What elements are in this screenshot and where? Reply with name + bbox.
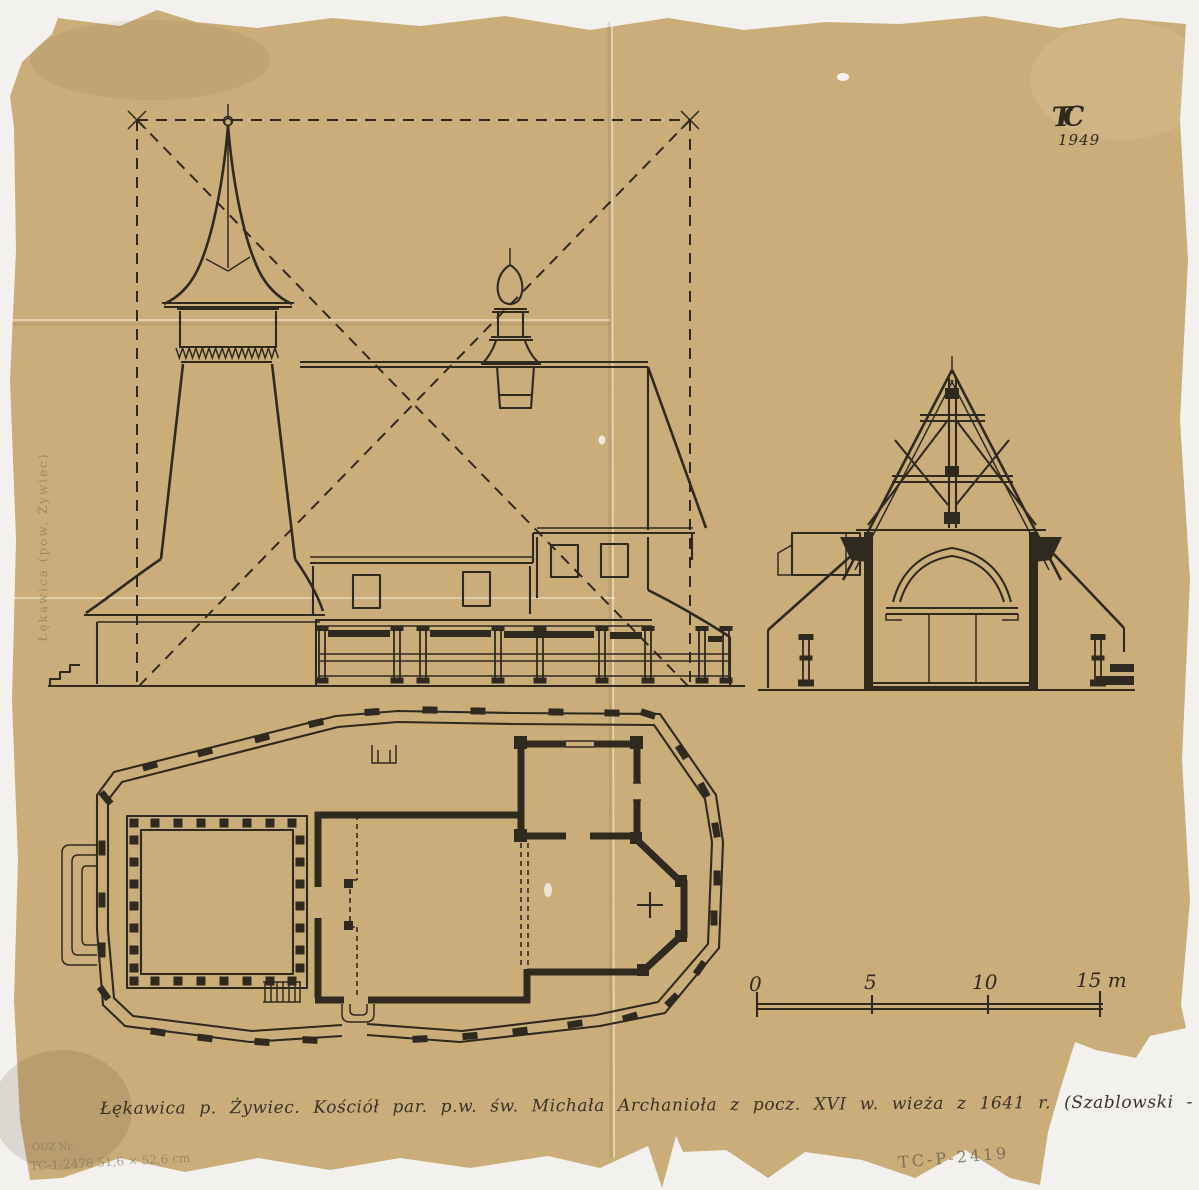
pencil-note-bottom-left-1: OUZ Nr	[32, 1142, 72, 1154]
fold-shadow-vertical	[609, 22, 611, 1158]
post-block	[130, 836, 139, 845]
post-block	[266, 819, 275, 828]
post-block	[220, 977, 229, 986]
post-block	[714, 871, 721, 886]
loft-post-1	[344, 879, 353, 888]
scale-label-0: 0	[749, 972, 762, 996]
post-block	[711, 911, 718, 926]
sacristy-corner-2	[630, 736, 643, 749]
post-block	[696, 678, 709, 684]
post-block	[534, 678, 547, 684]
paper-outline	[10, 10, 1190, 1188]
monogram-year: 1949	[1058, 131, 1100, 149]
post-block	[798, 680, 814, 687]
post-block	[151, 977, 160, 986]
post-block	[1091, 634, 1106, 640]
post-block	[642, 626, 655, 631]
scale-label-10: 10	[972, 970, 997, 994]
sacristy-corner-3	[514, 829, 527, 842]
post-block	[243, 819, 252, 828]
post-block	[492, 626, 505, 631]
chancel-corner-block-2	[675, 875, 687, 887]
post-block	[412, 1035, 427, 1043]
post-block	[99, 841, 106, 856]
paper-sheet	[0, 10, 1199, 1188]
chancel-corner-block-4	[637, 964, 649, 976]
post-block	[316, 678, 329, 684]
post-block	[417, 678, 430, 684]
post-block	[296, 858, 305, 867]
drawing-canvas	[0, 0, 1199, 1190]
post-block	[288, 819, 297, 828]
scale-label-5: 5	[864, 970, 877, 994]
post-block	[197, 819, 206, 828]
post-block	[99, 893, 106, 908]
post-block	[799, 634, 814, 640]
post-block	[534, 626, 547, 631]
post-block	[197, 977, 206, 986]
king-post-joint-3	[944, 512, 960, 524]
chancel-corner-block-3	[675, 930, 687, 942]
scanned-architectural-drawing-sheet: TC 1949 Łękawica p. Żywiec. Kościół par.…	[0, 0, 1199, 1190]
post-block	[130, 819, 139, 828]
sacristy-corner-1	[514, 736, 527, 749]
post-block	[296, 902, 305, 911]
scale-label-15m: 15 m	[1076, 968, 1127, 992]
post-block	[220, 819, 229, 828]
post-block	[243, 977, 252, 986]
post-block	[800, 656, 813, 661]
post-block	[130, 946, 139, 955]
margin-note-vertical: Łękawica (pow. Żywiec)	[36, 452, 50, 642]
post-block	[316, 626, 329, 631]
post-block	[174, 977, 183, 986]
post-block	[99, 943, 106, 958]
paper-fleck-2	[544, 883, 552, 897]
post-block	[596, 678, 609, 684]
post-block	[642, 678, 655, 684]
post-block	[696, 626, 709, 631]
post-block	[596, 626, 609, 631]
paper-shade-top	[30, 20, 270, 100]
post-block	[422, 706, 437, 713]
post-block	[1090, 680, 1106, 687]
post-block	[1092, 656, 1105, 661]
post-block	[548, 708, 563, 715]
section-floor-bar	[873, 686, 1029, 690]
post-block	[130, 977, 139, 986]
post-block	[130, 924, 139, 933]
post-block	[296, 836, 305, 845]
post-block	[266, 977, 275, 986]
post-block	[296, 964, 305, 973]
post-block	[391, 678, 404, 684]
paper-fleck-1	[599, 436, 606, 445]
king-post-joint-1	[945, 388, 959, 399]
post-block	[130, 880, 139, 889]
post-block	[470, 707, 485, 714]
paper-hole	[837, 73, 849, 81]
post-block	[302, 1036, 317, 1044]
post-block	[130, 858, 139, 867]
post-block	[130, 902, 139, 911]
post-block	[720, 678, 733, 684]
post-block	[417, 626, 430, 631]
right-step-2	[1110, 664, 1134, 672]
loft-post-2	[344, 921, 353, 930]
post-block	[720, 626, 733, 631]
author-monogram: TC	[1051, 102, 1076, 134]
post-block	[492, 678, 505, 684]
post-block	[296, 924, 305, 933]
post-block	[604, 709, 619, 716]
post-block	[254, 1038, 269, 1046]
post-block	[151, 819, 160, 828]
post-block	[364, 708, 379, 716]
post-block	[130, 964, 139, 973]
post-block	[296, 946, 305, 955]
post-block	[174, 819, 183, 828]
post-block	[296, 880, 305, 889]
post-block	[462, 1032, 478, 1040]
post-block	[391, 626, 404, 631]
